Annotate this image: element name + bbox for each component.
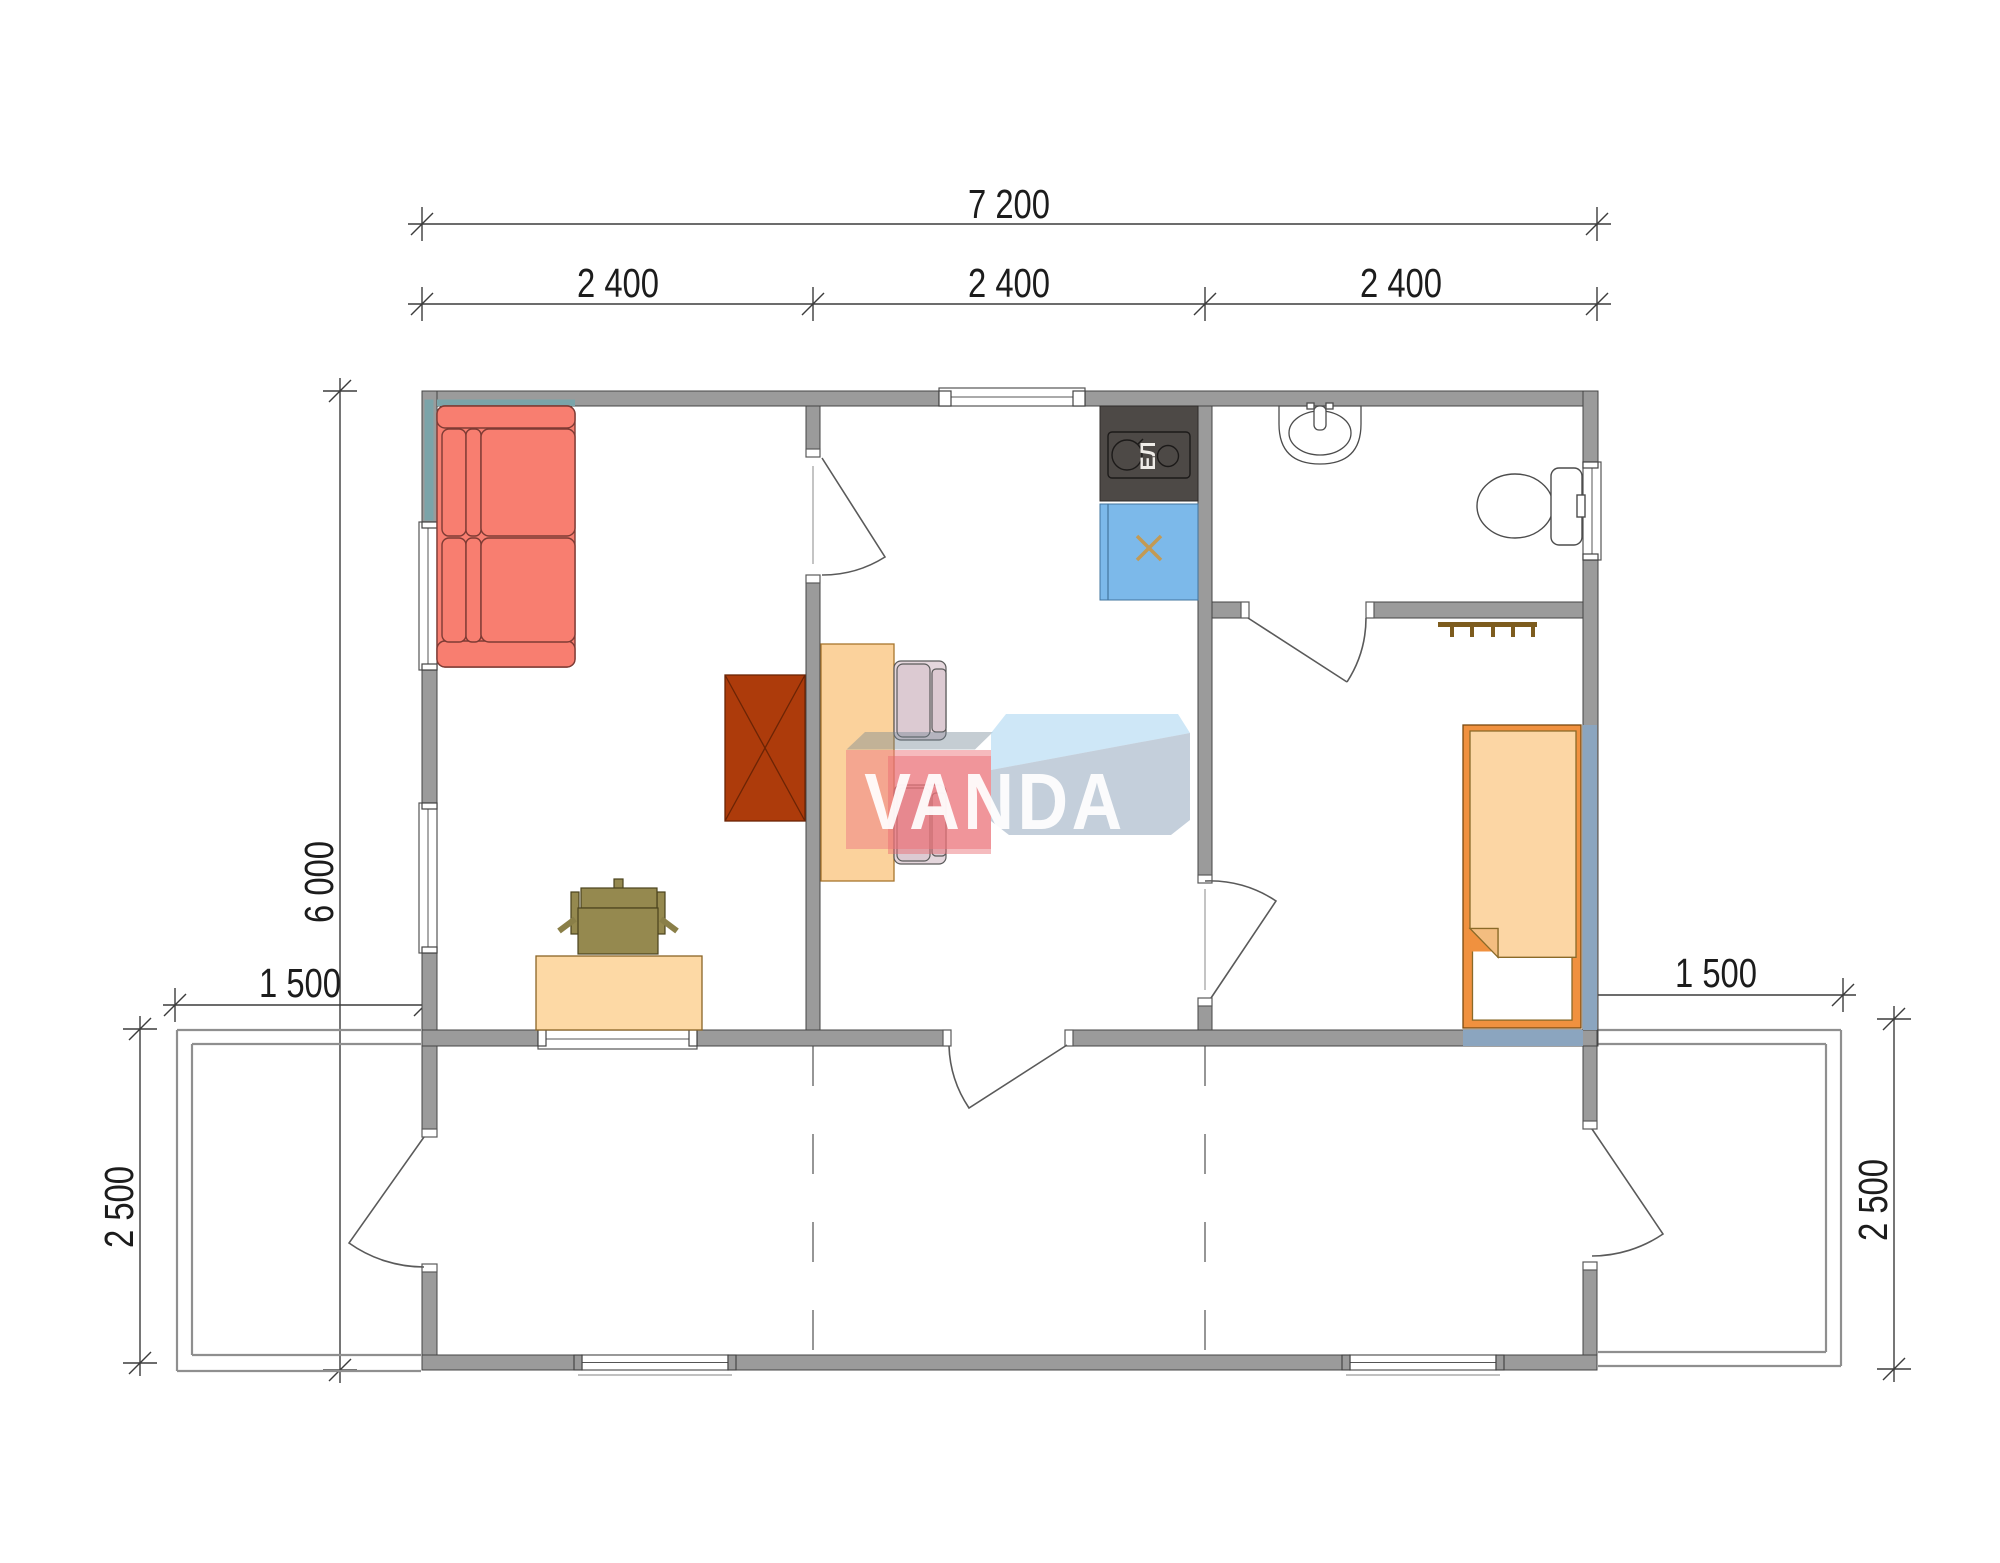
svg-text:2 400: 2 400	[577, 259, 659, 305]
svg-text:2 500: 2 500	[1849, 1159, 1895, 1241]
svg-text:7 200: 7 200	[968, 180, 1050, 226]
svg-text:VANDA: VANDA	[864, 757, 1125, 846]
svg-text:ЕЛ: ЕЛ	[1137, 442, 1160, 471]
svg-text:1 500: 1 500	[1675, 949, 1757, 995]
svg-text:6 000: 6 000	[295, 841, 341, 923]
svg-text:2 400: 2 400	[968, 259, 1050, 305]
svg-text:2 500: 2 500	[95, 1166, 141, 1248]
svg-text:2 400: 2 400	[1360, 259, 1442, 305]
svg-text:1 500: 1 500	[259, 959, 341, 1005]
